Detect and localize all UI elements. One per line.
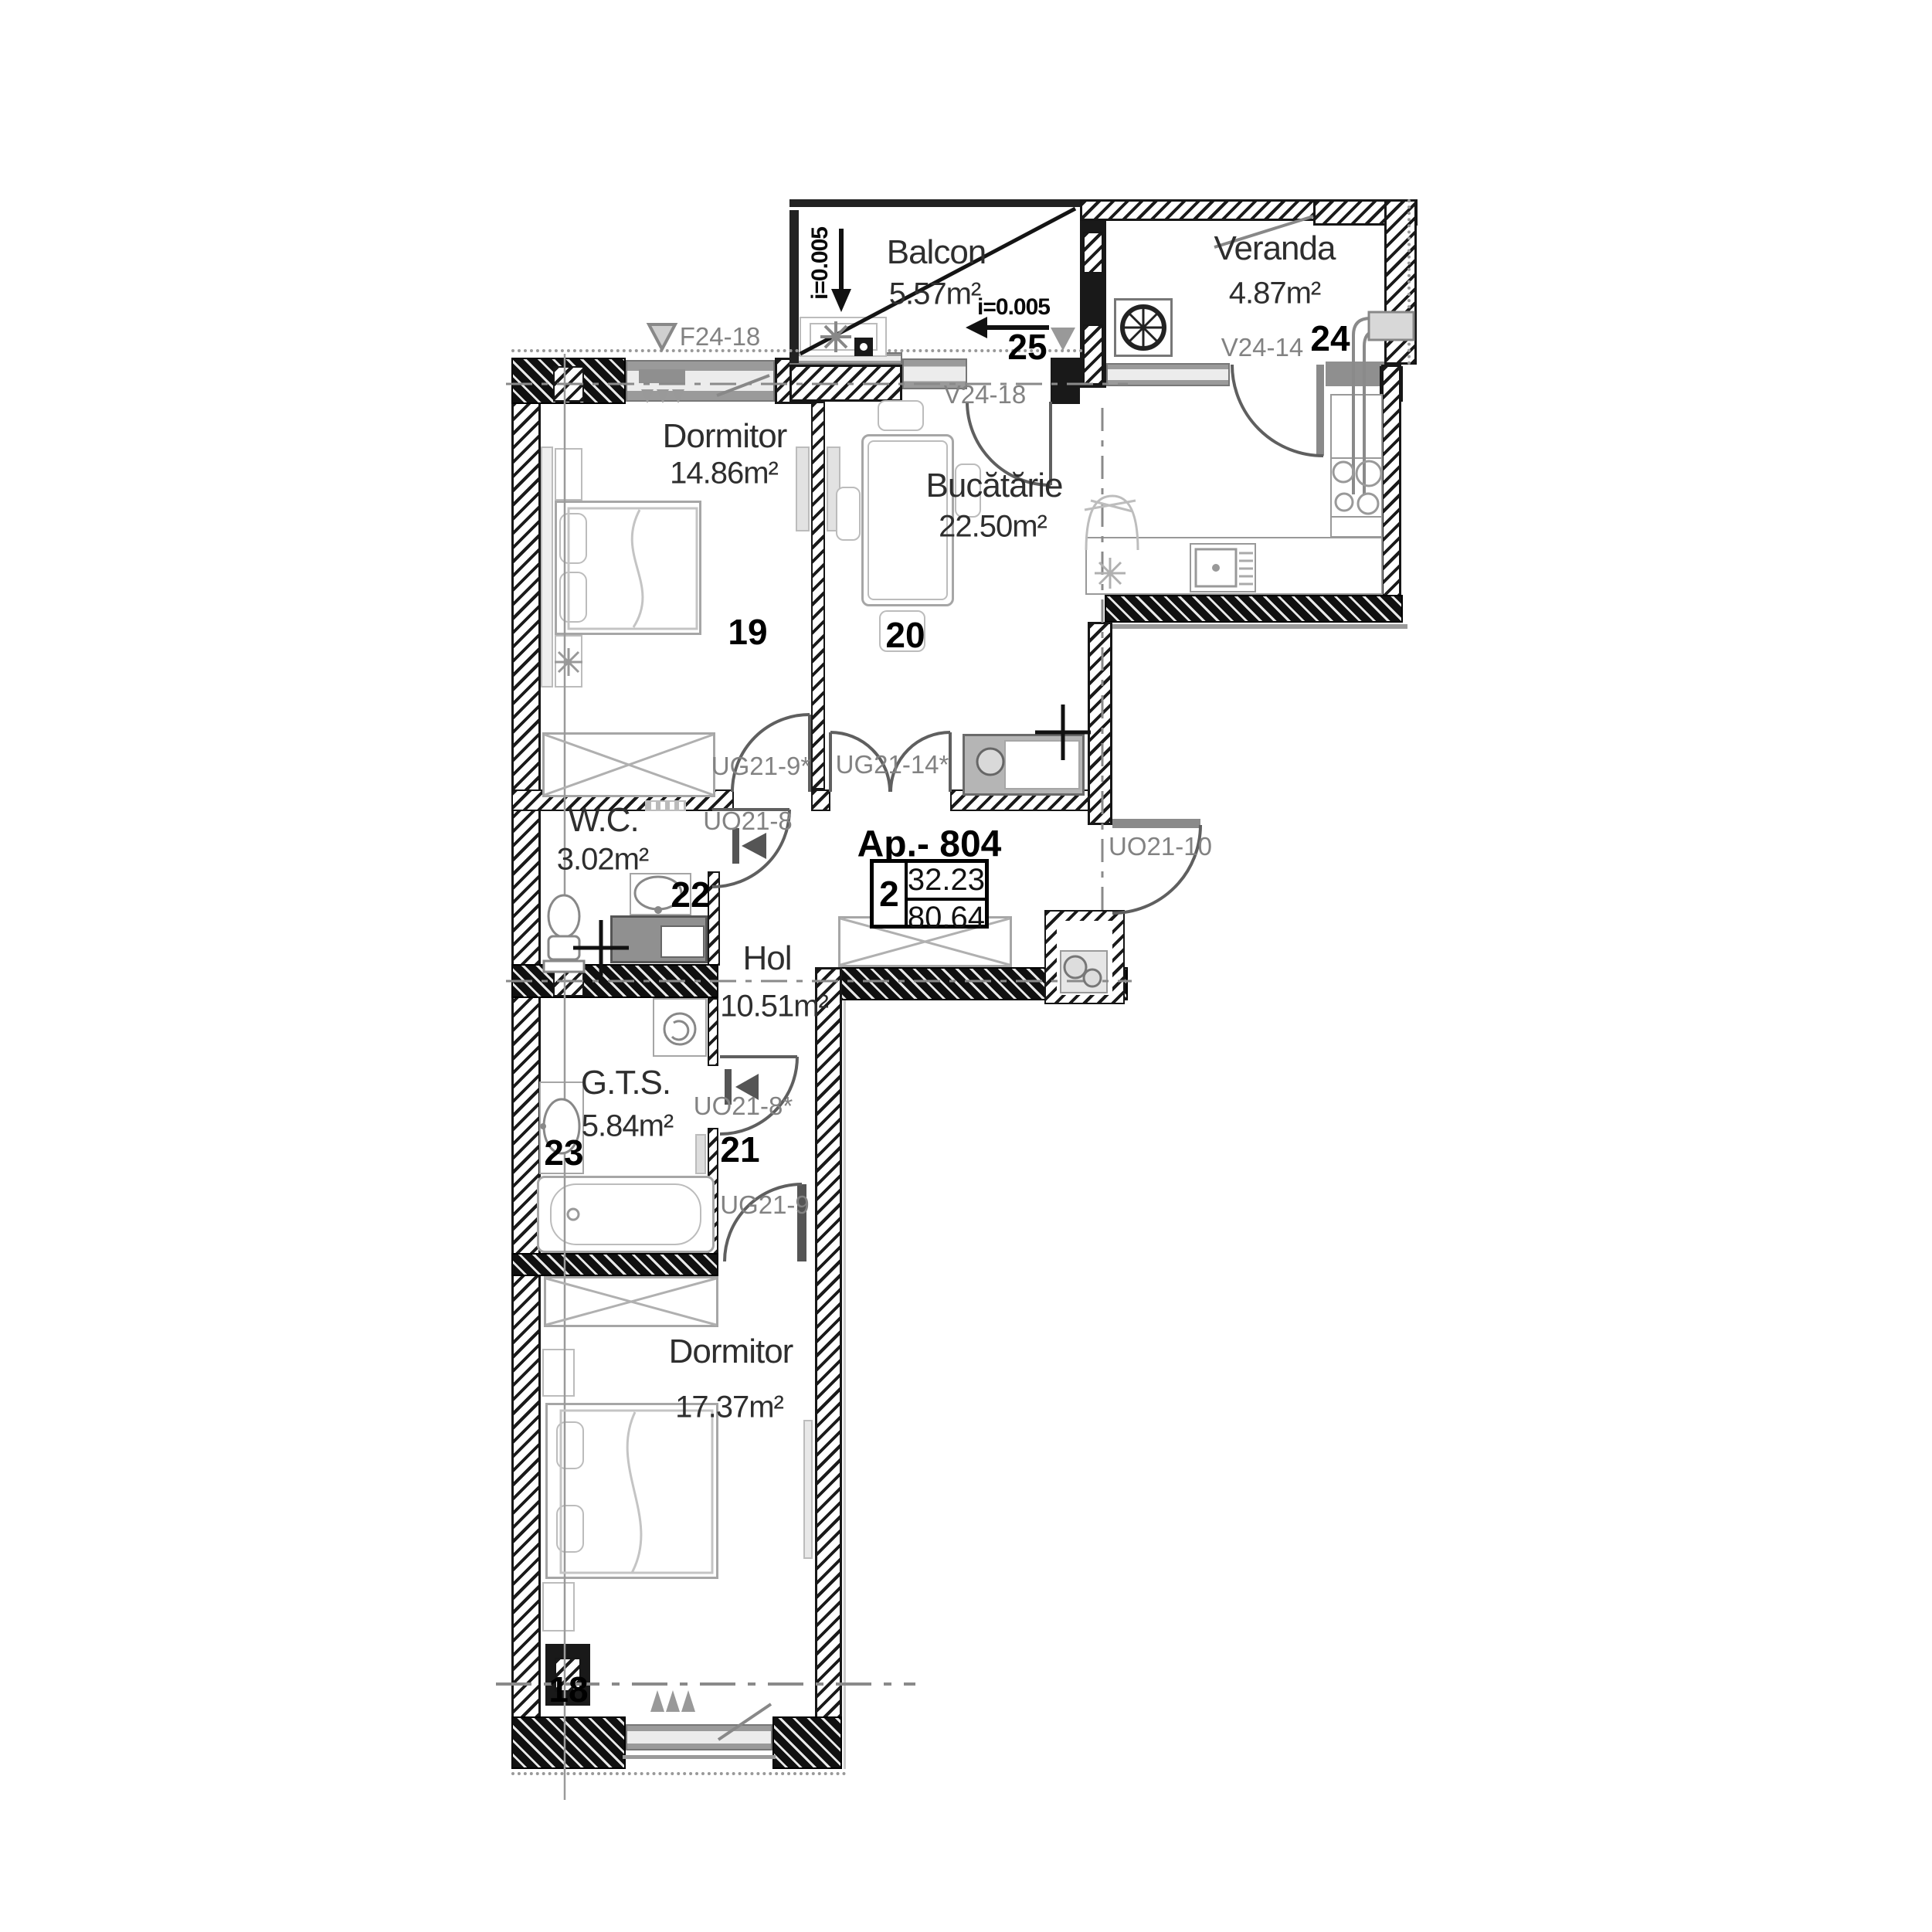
code-uo21-8: UO21-8 xyxy=(703,806,793,836)
meter-dial-2-icon xyxy=(1084,969,1101,986)
room-number-balcon: 25 xyxy=(1007,326,1047,368)
room-label-veranda: Veranda xyxy=(1214,229,1336,268)
floor-plan: Balcon 5.57m² i=0.005 i=0.005 25 Veranda… xyxy=(0,0,1932,1932)
room-label-hol: Hol xyxy=(742,939,791,978)
nook-star-icon xyxy=(1095,558,1126,589)
bed2-blanket xyxy=(627,1412,641,1573)
room-label-balcon: Balcon xyxy=(887,233,986,272)
wardrobe1-x xyxy=(545,735,713,795)
wc-basin-tap-icon xyxy=(654,906,662,914)
code-v24-14: V24-14 xyxy=(1221,333,1303,362)
riser-cross-kitchen-icon xyxy=(1035,705,1091,760)
bed1-blanket xyxy=(632,510,643,627)
room-area-balcon: 5.57m² xyxy=(889,277,981,312)
room-area-dormitor1: 14.86m² xyxy=(670,457,778,491)
room-number-veranda: 24 xyxy=(1310,317,1350,359)
room-number-wc: 22 xyxy=(671,874,710,915)
room-area-veranda: 4.87m² xyxy=(1229,277,1321,311)
code-v24-18: V24-18 xyxy=(944,380,1026,409)
room-area-hol: 10.51m² xyxy=(720,990,828,1024)
bed2-mattress xyxy=(561,1411,712,1573)
wardrobe2-x xyxy=(546,1278,716,1325)
code-uo21-8s: UO21-8* xyxy=(694,1092,793,1121)
boiler-fan-blades-icon xyxy=(1122,307,1164,348)
desk-chair-icon xyxy=(977,749,1003,775)
apartment-area-top: 32.23 xyxy=(908,863,985,901)
meter-dial-1-icon xyxy=(1064,956,1086,978)
triangle-small-2-icon xyxy=(657,389,669,403)
flue-cap xyxy=(1369,312,1414,340)
washing-machine-door-icon xyxy=(672,1021,688,1040)
bathtub-drain-icon xyxy=(568,1209,579,1220)
room-label-gts: G.T.S. xyxy=(581,1064,671,1102)
balcony-plant-icon xyxy=(820,321,851,352)
burner-3-icon xyxy=(1336,494,1353,511)
room-label-dormitor1: Dormitor xyxy=(663,417,787,456)
window-tick-top xyxy=(717,375,769,396)
room-area-gts: 5.84m² xyxy=(582,1109,674,1144)
triangle-up-1-icon xyxy=(650,1690,664,1712)
room-number-dormitor2: 18 xyxy=(548,1669,588,1710)
nabla-marker-f24-icon xyxy=(649,324,675,349)
room-label-bucatarie: Bucătărie xyxy=(926,467,1063,505)
plant-icon xyxy=(555,648,582,676)
kitchen-sink-board xyxy=(1239,553,1253,584)
room-area-bucatarie: 22.50m² xyxy=(939,510,1047,545)
room-number-hol: 21 xyxy=(720,1129,759,1170)
code-ug21-9s: UG21-9* xyxy=(711,752,810,781)
code-ug21-14s: UG21-14* xyxy=(836,750,949,779)
code-f24-18: F24-18 xyxy=(680,322,761,351)
nabla-marker-v24-icon xyxy=(1051,328,1075,351)
room-area-wc: 3.02m² xyxy=(557,843,649,878)
burner-1-icon xyxy=(1333,462,1353,482)
room-number-dormitor1: 19 xyxy=(728,611,767,653)
slope-label-horizontal: i=0.005 xyxy=(977,294,1050,321)
triangle-up-2-icon xyxy=(666,1690,680,1712)
triangle-small-3-icon xyxy=(672,389,684,403)
flue-pipes xyxy=(1353,318,1414,494)
room-number-bucatarie: 20 xyxy=(885,614,925,656)
apartment-area-bottom: 80.64 xyxy=(908,901,985,935)
slope-arrow-down-head-icon xyxy=(831,289,851,312)
room-label-dormitor2: Dormitor xyxy=(669,1333,793,1371)
toilet-bowl-icon xyxy=(548,895,579,937)
toilet-base-icon xyxy=(544,961,584,972)
gts-tap-icon xyxy=(540,1123,546,1129)
code-ug21-9: UG21-9 xyxy=(720,1190,810,1220)
slope-label-vertical: i=0.005 xyxy=(807,227,834,300)
room-label-wc: W.C. xyxy=(568,801,638,840)
nook-arch-motif xyxy=(1085,496,1138,550)
kitchen-sink-drain-icon xyxy=(1212,564,1220,572)
apartment-rooms-count: 2 xyxy=(874,863,908,925)
drain-dot-icon xyxy=(860,343,868,351)
burner-4-icon xyxy=(1358,494,1378,514)
door-arc-veranda xyxy=(1232,365,1323,456)
door-symbol-uo21-8-icon xyxy=(742,833,766,859)
triangle-small-1-icon xyxy=(641,389,654,403)
apartment-info-box: 2 32.23 80.64 xyxy=(870,859,989,929)
triangle-up-3-icon xyxy=(681,1690,695,1712)
room-number-gts: 23 xyxy=(544,1132,583,1173)
code-uo21-10: UO21-10 xyxy=(1109,832,1212,861)
burner-2-icon xyxy=(1356,461,1381,486)
window-tick-bottom xyxy=(718,1704,771,1740)
room-area-dormitor2: 17.37m² xyxy=(675,1390,783,1425)
